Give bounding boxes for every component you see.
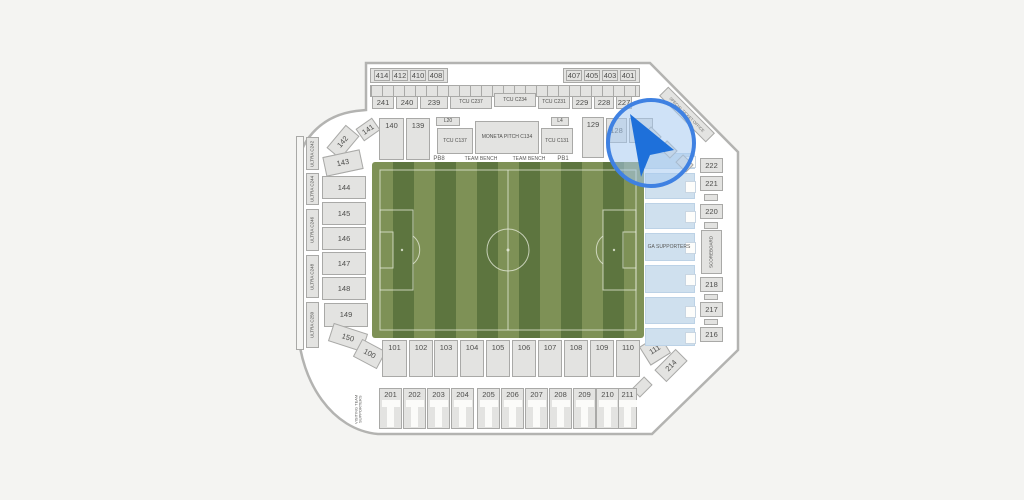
ga-supporters-label: GA SUPPORTERS [641,243,697,252]
zoom-cursor-lens [606,98,696,188]
section-403[interactable]: 403 [602,70,618,81]
section-129[interactable]: 129 [582,117,604,158]
section-102[interactable]: 102 [409,340,433,377]
section-210[interactable]: 210 [596,388,619,429]
section-208[interactable]: 208 [549,388,572,429]
section-105[interactable]: 105 [486,340,510,377]
section-ultra-c244[interactable]: ULTRA C244 [306,173,319,205]
section-203[interactable]: 203 [427,388,450,429]
section-110[interactable]: 110 [616,340,640,377]
seating-map[interactable]: { "map": { "venue_type": "soccer-stadium… [0,0,1024,500]
section-143[interactable]: 143 [322,149,363,176]
section-l4[interactable]: L4 [551,117,569,126]
section-ultra-c242[interactable]: ULTRA C242 [306,137,319,170]
deco-east-2 [704,222,718,229]
section-205[interactable]: 205 [477,388,500,429]
section-103[interactable]: 103 [434,340,458,377]
section-145[interactable]: 145 [322,202,366,225]
section-140[interactable]: 140 [379,118,404,160]
navigation-arrow-icon [610,102,692,184]
section-scoreboard: SCOREBOARD [701,230,722,274]
section-108[interactable]: 108 [564,340,588,377]
section-pb1[interactable]: PB1 [554,154,572,163]
section-tcu-c237[interactable]: TCU C237 [450,96,492,109]
ga-band-6[interactable] [645,297,695,324]
section-221[interactable]: 221 [700,176,723,191]
deco-east-1 [704,194,718,201]
section-149[interactable]: 149 [324,303,368,327]
section-412[interactable]: 412 [392,70,408,81]
section-148[interactable]: 148 [322,277,366,300]
section-407[interactable]: 407 [566,70,582,81]
section-207[interactable]: 207 [525,388,548,429]
section-tcu-c137[interactable]: TCU C137 [437,128,473,154]
section-106[interactable]: 106 [512,340,536,377]
ga-band-5[interactable] [645,265,695,293]
section-216[interactable]: 216 [700,327,723,342]
section-139[interactable]: 139 [406,118,430,160]
section-211[interactable]: 211 [618,388,637,429]
section-408[interactable]: 408 [428,70,444,81]
section-141[interactable]: 141 [356,118,381,142]
ga-band-3[interactable] [645,203,695,229]
section-222[interactable]: 222 [700,158,723,173]
section-144[interactable]: 144 [322,176,366,199]
section-ultra-c246[interactable]: ULTRA C246 [306,209,319,251]
section-241[interactable]: 241 [372,96,394,109]
section-204[interactable]: 204 [451,388,474,429]
deco-east-3 [704,294,718,300]
section-tcu-c234[interactable]: TCU C234 [494,93,536,107]
team-bench-right: TEAM BENCH [506,156,552,163]
section-ultra-c248[interactable]: ULTRA C248 [306,255,319,298]
section-146[interactable]: 146 [322,227,366,250]
section-240[interactable]: 240 [396,96,418,109]
section-218[interactable]: 218 [700,277,723,292]
team-bench-left: TEAM BENCH [458,156,504,163]
section-moneta-pitch-c134[interactable]: MONETA PITCH C134 [475,121,539,154]
section-pb8[interactable]: PB8 [430,154,448,163]
visiting-team-supporters-label: VISITING TEAM SUPPORTERS [350,386,367,432]
section-147[interactable]: 147 [322,252,366,275]
section-201[interactable]: 201 [379,388,402,429]
section-101[interactable]: 101 [382,340,407,377]
deco-east-4 [704,319,718,325]
section-239[interactable]: 239 [420,96,448,109]
west-rail [296,136,304,350]
sections-layer: 414412410408407405403401241240239TCU C23… [0,0,1024,500]
section-401[interactable]: 401 [620,70,636,81]
section-109[interactable]: 109 [590,340,614,377]
section-l20[interactable]: L20 [436,117,460,126]
section-405[interactable]: 405 [584,70,600,81]
section-ultra-c250[interactable]: ULTRA C250 [306,302,319,348]
section-229[interactable]: 229 [572,96,592,109]
section-410[interactable]: 410 [410,70,426,81]
section-tcu-c131[interactable]: TCU C131 [541,128,573,154]
section-107[interactable]: 107 [538,340,562,377]
section-414[interactable]: 414 [374,70,390,81]
section-202[interactable]: 202 [403,388,426,429]
section-206[interactable]: 206 [501,388,524,429]
section-209[interactable]: 209 [573,388,596,429]
section-tcu-c231[interactable]: TCU C231 [538,96,570,109]
section-104[interactable]: 104 [460,340,484,377]
section-220[interactable]: 220 [700,204,723,219]
ga-band-7[interactable] [645,328,695,346]
section-217[interactable]: 217 [700,302,723,317]
